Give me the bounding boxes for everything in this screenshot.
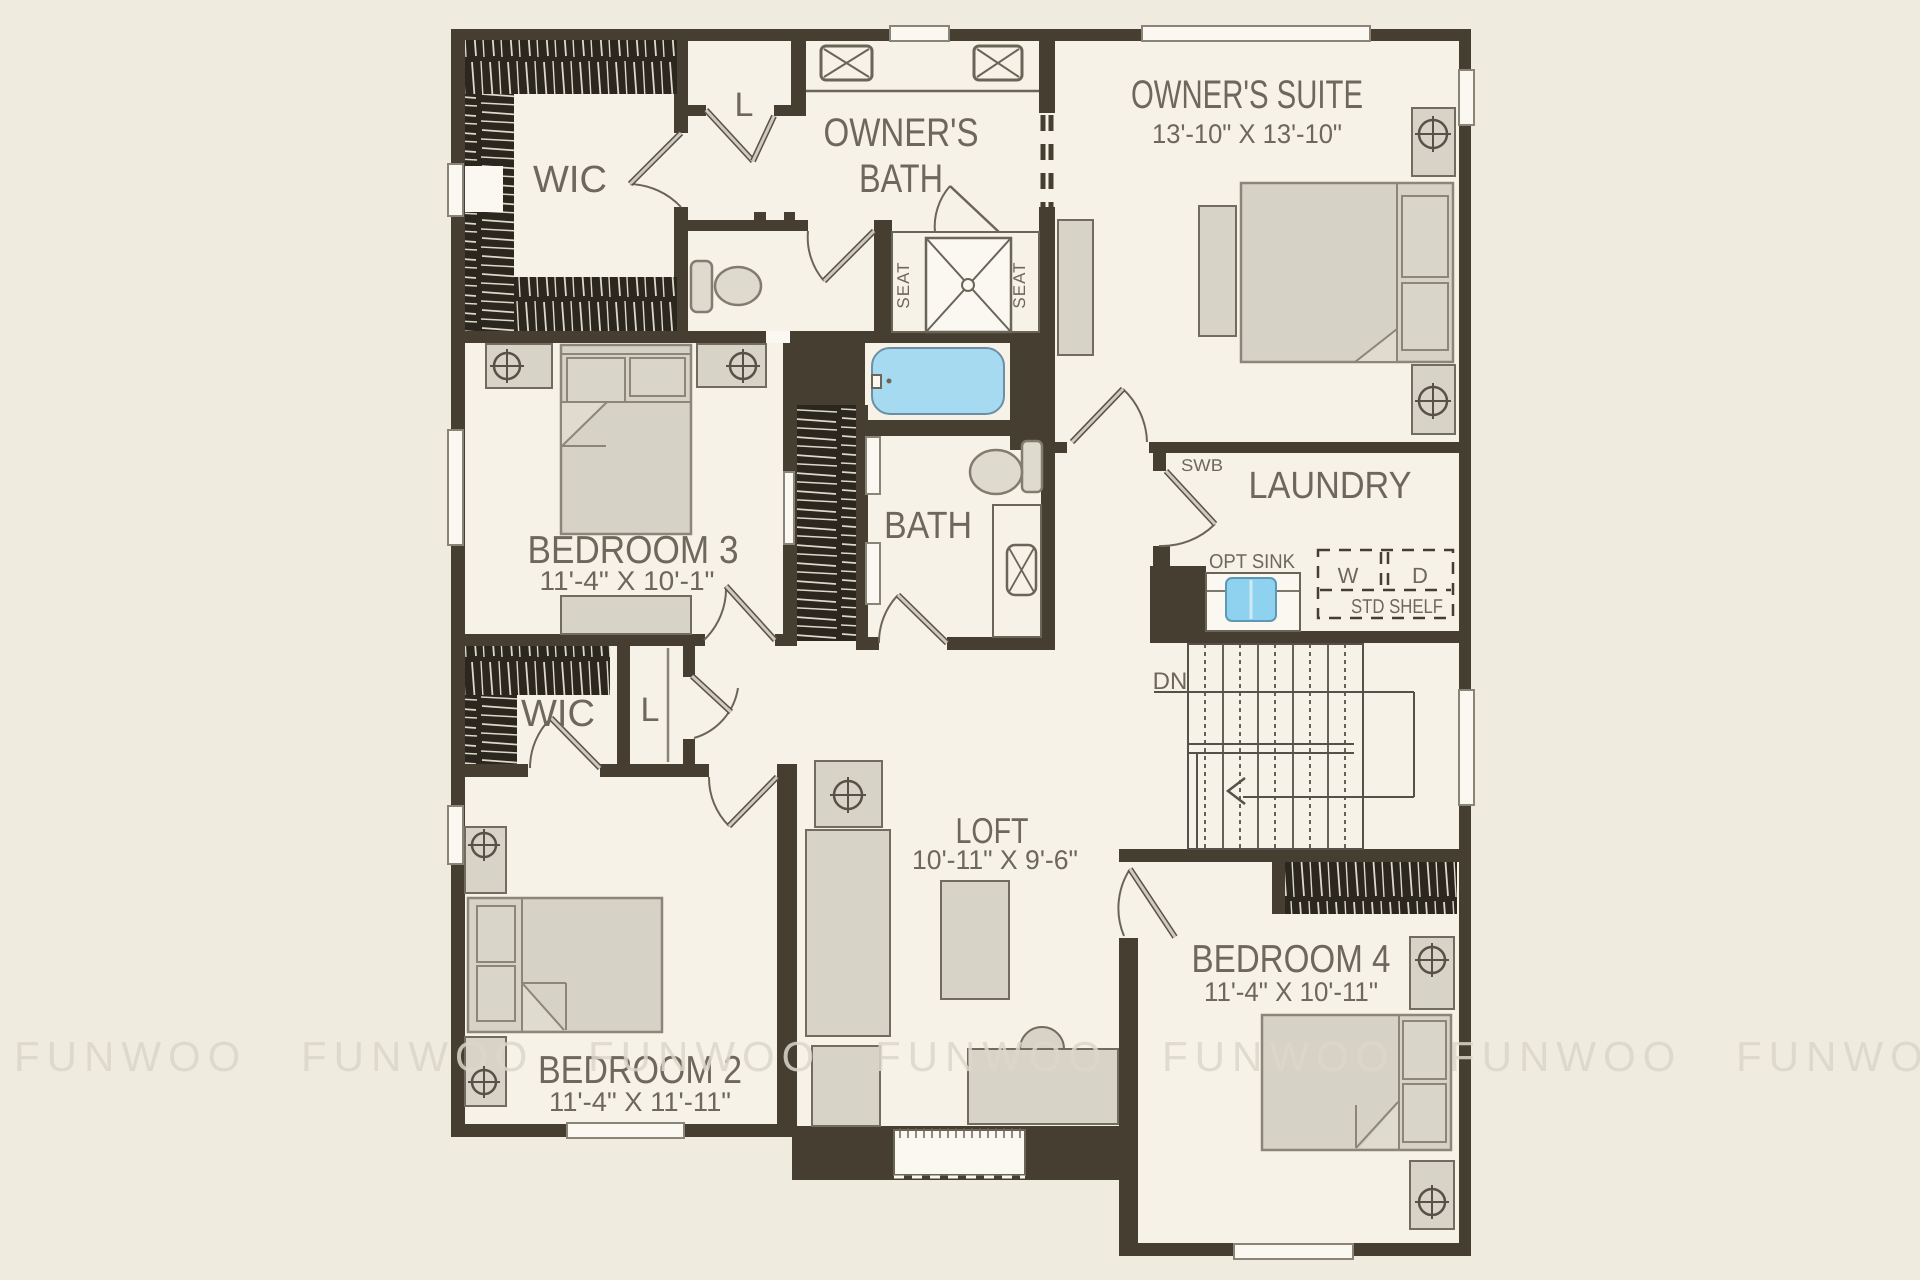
svg-text:OWNER'S SUITE: OWNER'S SUITE bbox=[1131, 73, 1363, 117]
svg-text:LAUNDRY: LAUNDRY bbox=[1249, 465, 1412, 507]
svg-text:L: L bbox=[641, 691, 660, 729]
svg-text:FUNWOO: FUNWOO bbox=[588, 1033, 821, 1080]
svg-text:11'-4" X 11'-11": 11'-4" X 11'-11" bbox=[549, 1087, 731, 1117]
svg-text:STD SHELF: STD SHELF bbox=[1351, 596, 1443, 618]
svg-text:SWB: SWB bbox=[1181, 456, 1223, 475]
svg-text:FUNWOO: FUNWOO bbox=[1736, 1033, 1920, 1080]
svg-text:BEDROOM 4: BEDROOM 4 bbox=[1192, 938, 1391, 981]
svg-text:FUNWOO: FUNWOO bbox=[14, 1033, 247, 1080]
svg-text:10'-11" X 9'-6": 10'-11" X 9'-6" bbox=[912, 845, 1078, 875]
svg-text:FUNWOO: FUNWOO bbox=[301, 1033, 534, 1080]
svg-text:SEAT: SEAT bbox=[1010, 261, 1029, 308]
svg-text:FUNWOO: FUNWOO bbox=[1449, 1033, 1682, 1080]
svg-text:FUNWOO: FUNWOO bbox=[1162, 1033, 1395, 1080]
svg-text:WIC: WIC bbox=[533, 159, 607, 201]
svg-text:13'-10" X 13'-10": 13'-10" X 13'-10" bbox=[1152, 119, 1342, 149]
svg-text:L: L bbox=[735, 86, 754, 124]
svg-text:OWNER'S: OWNER'S bbox=[824, 111, 979, 155]
svg-text:BATH: BATH bbox=[884, 505, 972, 547]
svg-text:FUNWOO: FUNWOO bbox=[875, 1033, 1108, 1080]
svg-text:SEAT: SEAT bbox=[894, 261, 913, 308]
svg-text:11'-4" X 10'-1": 11'-4" X 10'-1" bbox=[540, 566, 715, 596]
svg-text:W: W bbox=[1338, 563, 1359, 588]
svg-text:WIC: WIC bbox=[521, 693, 595, 735]
svg-text:OPT SINK: OPT SINK bbox=[1209, 551, 1296, 573]
svg-text:D: D bbox=[1412, 563, 1428, 588]
svg-text:DN: DN bbox=[1153, 668, 1188, 695]
svg-text:11'-4" X 10'-11": 11'-4" X 10'-11" bbox=[1204, 977, 1378, 1007]
svg-text:BATH: BATH bbox=[859, 157, 943, 201]
